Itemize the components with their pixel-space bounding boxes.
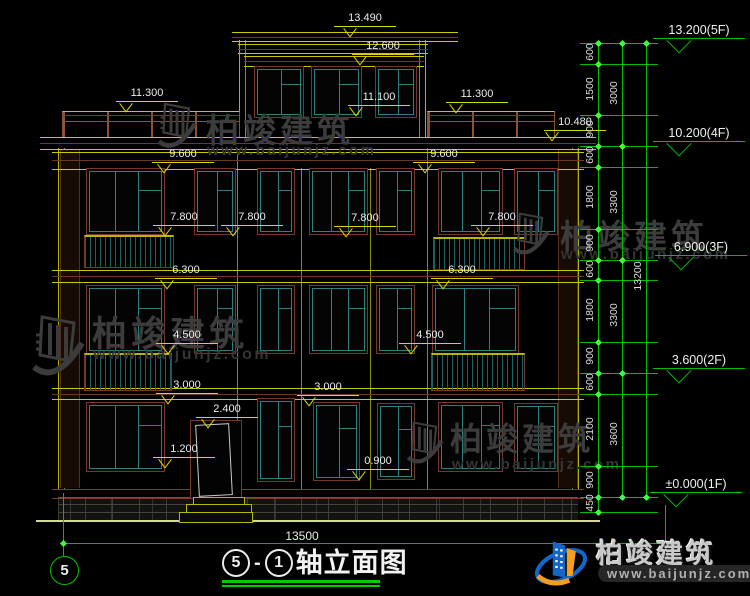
- dimension-tag-label: 11.300: [116, 87, 178, 100]
- dim-tick: [595, 391, 602, 398]
- dimension-tag-label: 7.800: [221, 211, 283, 224]
- dimension-tag-label: 3.000: [297, 381, 359, 394]
- stone-plinth: [58, 497, 578, 521]
- wall-line: [301, 168, 302, 489]
- dimension-tag-label: 4.500: [399, 329, 461, 342]
- dimension-tag-label: 1.200: [153, 443, 215, 456]
- dimension-tag-label: 0.900: [347, 455, 409, 468]
- dim-tick: [619, 370, 626, 377]
- elevation-drawing-canvas: 柏竣建筑 www.baijunjz.com 柏竣建筑 www.baijunjz.…: [0, 0, 750, 596]
- dim-arrow-icon: [353, 471, 365, 479]
- dim-arrow-icon: [350, 107, 362, 115]
- window: [257, 285, 295, 354]
- dim-arrow-icon: [162, 395, 174, 403]
- level-marker: 3.600(2F): [653, 353, 745, 371]
- balcony-railing: [431, 353, 525, 391]
- dim-arrow-icon: [344, 28, 356, 36]
- dim-tick: [60, 540, 67, 547]
- dim-arrow-icon: [546, 132, 558, 140]
- width-dimension-label: 13500: [262, 529, 342, 543]
- dimension-tag-label: 11.300: [446, 88, 508, 101]
- dim-arrow-icon: [227, 227, 239, 235]
- dimension-tag-label: 7.800: [471, 211, 533, 224]
- dim-arrow-icon: [437, 280, 449, 288]
- dim-tick: [595, 61, 602, 68]
- dim-tick: [595, 40, 602, 47]
- dim-arrow-icon: [667, 40, 691, 52]
- plinth-band: [52, 489, 584, 499]
- dimension-tag-label: 10.480: [544, 116, 606, 129]
- dim-tick: [619, 143, 626, 150]
- company-logo: [528, 530, 594, 594]
- chain-dim-label: 2100: [584, 407, 596, 451]
- level-marker-label: 3.600(2F): [653, 353, 745, 367]
- dimension-tag-label: 12.600: [352, 40, 414, 53]
- wall-line: [425, 40, 426, 137]
- dim-arrow-icon: [158, 164, 170, 172]
- dim-arrow-icon: [419, 164, 431, 172]
- dim-arrow-icon: [340, 228, 352, 236]
- dimension-tag-label: 9.600: [152, 148, 214, 161]
- dim-arrow-icon: [202, 419, 214, 427]
- level-marker-label: 13.200(5F): [653, 23, 745, 37]
- title-underline: [222, 585, 380, 587]
- dim-arrow-icon: [161, 280, 173, 288]
- chain-dim-label: 3300: [608, 180, 620, 224]
- title-underline: [222, 580, 380, 583]
- dim-arrow-icon: [450, 104, 462, 112]
- dim-arrow-icon: [667, 370, 691, 382]
- dim-arrow-icon: [303, 397, 315, 405]
- dim-arrow-icon: [159, 227, 171, 235]
- window: [309, 285, 368, 354]
- dim-arrow-icon: [477, 227, 489, 235]
- dimension-tag-label: 3.000: [156, 379, 218, 392]
- dimension-tag-label: 7.800: [334, 212, 396, 225]
- dim-tick: [595, 164, 602, 171]
- dim-chain-line: [646, 43, 647, 497]
- dimension-tag-label: 2.400: [196, 403, 258, 416]
- title-axis-end-bubble: 1: [265, 549, 293, 577]
- parapet-railing: [427, 111, 555, 138]
- dimension-tag-label: 9.600: [413, 148, 475, 161]
- dimension-tag-label: 6.300: [431, 264, 493, 277]
- dim-tick: [595, 509, 602, 516]
- ground-line: [36, 520, 600, 522]
- dim-arrow-icon: [354, 56, 366, 64]
- dim-arrow-icon: [159, 459, 171, 467]
- watermark-url: www.baijunjz.com: [207, 142, 376, 159]
- wall-line: [419, 40, 420, 137]
- dimension-tag-label: 4.500: [156, 329, 218, 342]
- dimension-tag-label: 7.800: [153, 211, 215, 224]
- chain-dim-label: 3300: [608, 293, 620, 337]
- dim-tick: [595, 370, 602, 377]
- entrance-step: [179, 512, 253, 523]
- chain-dim-label: 3000: [608, 71, 620, 115]
- level-marker: 13.200(5F): [653, 23, 745, 41]
- chain-dim-label: 600: [584, 247, 596, 291]
- dim-tick: [595, 494, 602, 501]
- title-axis-separator: -: [254, 552, 261, 575]
- company-url: www.baijunjz.com: [598, 565, 750, 582]
- chain-dim-label: 1500: [584, 67, 596, 111]
- dim-arrow-icon: [664, 494, 688, 506]
- chain-dim-label: 1800: [584, 175, 596, 219]
- dim-tick: [595, 339, 602, 346]
- chain-total-label: 13200: [632, 254, 644, 298]
- chain-dim-label: 3600: [608, 412, 620, 456]
- dimension-tag-label: 11.100: [348, 91, 410, 104]
- chain-dim-label: 450: [584, 481, 596, 525]
- level-marker: 10.200(4F): [653, 126, 745, 144]
- dim-arrow-icon: [667, 143, 691, 155]
- watermark-brand: 柏竣建筑: [450, 414, 594, 460]
- window: [257, 398, 295, 482]
- chain-dim-label: 1800: [584, 288, 596, 332]
- drawing-title: 5 - 1 轴立面图: [222, 549, 408, 577]
- dim-arrow-icon: [405, 345, 417, 353]
- level-marker-label: 6.900(3F): [655, 240, 747, 254]
- axis-bubble-5: 5: [50, 556, 79, 585]
- level-marker: ±0.000(1F): [650, 477, 742, 495]
- level-marker-label: ±0.000(1F): [650, 477, 742, 491]
- chain-dim-label: 600: [584, 360, 596, 404]
- dim-arrow-icon: [120, 103, 132, 111]
- title-axis-start-bubble: 5: [222, 549, 250, 577]
- dim-tick: [643, 40, 650, 47]
- dim-tick: [595, 277, 602, 284]
- chain-dim-label: 600: [584, 133, 596, 177]
- title-text: 轴立面图: [296, 549, 408, 577]
- floor-band: [52, 270, 584, 283]
- dim-tick: [643, 494, 650, 501]
- dim-arrow-icon: [162, 345, 174, 353]
- level-marker: 6.900(3F): [655, 240, 747, 258]
- level-marker-label: 10.200(4F): [653, 126, 745, 140]
- watermark-logo: [28, 308, 88, 390]
- dimension-tag-label: 13.490: [334, 12, 396, 25]
- dim-tick: [619, 40, 626, 47]
- dim-arrow-icon: [669, 257, 693, 269]
- watermark-logo: [404, 412, 446, 478]
- dimension-tag-label: 6.300: [155, 264, 217, 277]
- dim-tick: [619, 494, 626, 501]
- dim-tick: [595, 143, 602, 150]
- dim-chain-line: [622, 43, 623, 497]
